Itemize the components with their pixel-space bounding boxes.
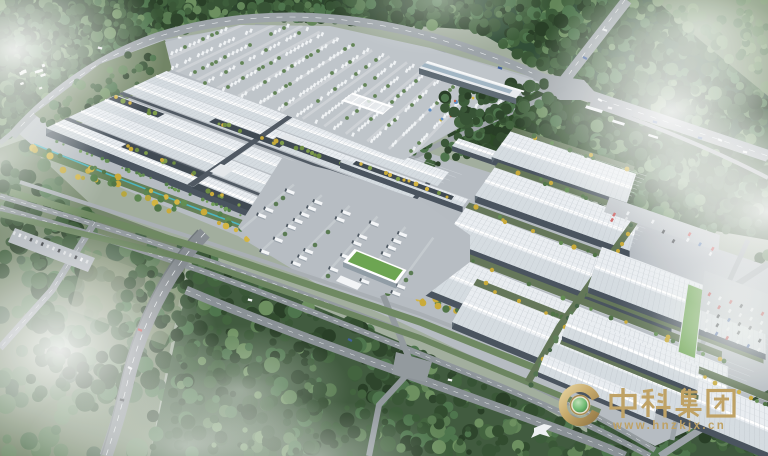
svg-text:www.hnzkjx.cn: www.hnzkjx.cn [612,420,726,432]
